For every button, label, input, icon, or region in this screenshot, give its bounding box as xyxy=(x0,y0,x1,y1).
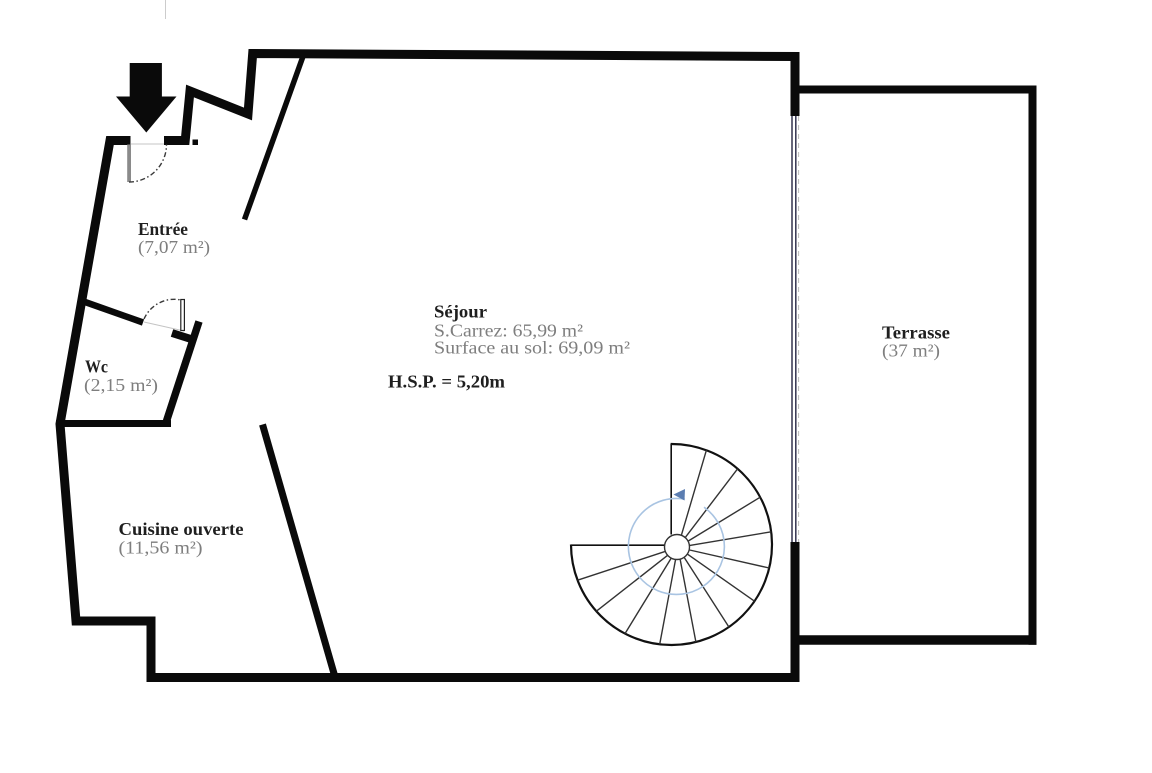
svg-text:(11,56 m²): (11,56 m²) xyxy=(119,538,203,559)
svg-text:Wc: Wc xyxy=(85,357,108,377)
svg-text:Entrée: Entrée xyxy=(138,219,188,239)
svg-text:(7,07 m²): (7,07 m²) xyxy=(138,237,210,258)
svg-text:(37 m²): (37 m²) xyxy=(882,341,940,362)
svg-text:Terrasse: Terrasse xyxy=(882,323,950,343)
svg-text:(2,15 m²): (2,15 m²) xyxy=(84,375,158,396)
svg-text:Cuisine ouverte: Cuisine ouverte xyxy=(119,519,244,539)
svg-text:Séjour: Séjour xyxy=(434,302,487,322)
svg-text:H.S.P. = 5,20m: H.S.P. = 5,20m xyxy=(388,372,505,392)
svg-text:Surface au sol: 69,09 m²: Surface au sol: 69,09 m² xyxy=(434,338,630,358)
